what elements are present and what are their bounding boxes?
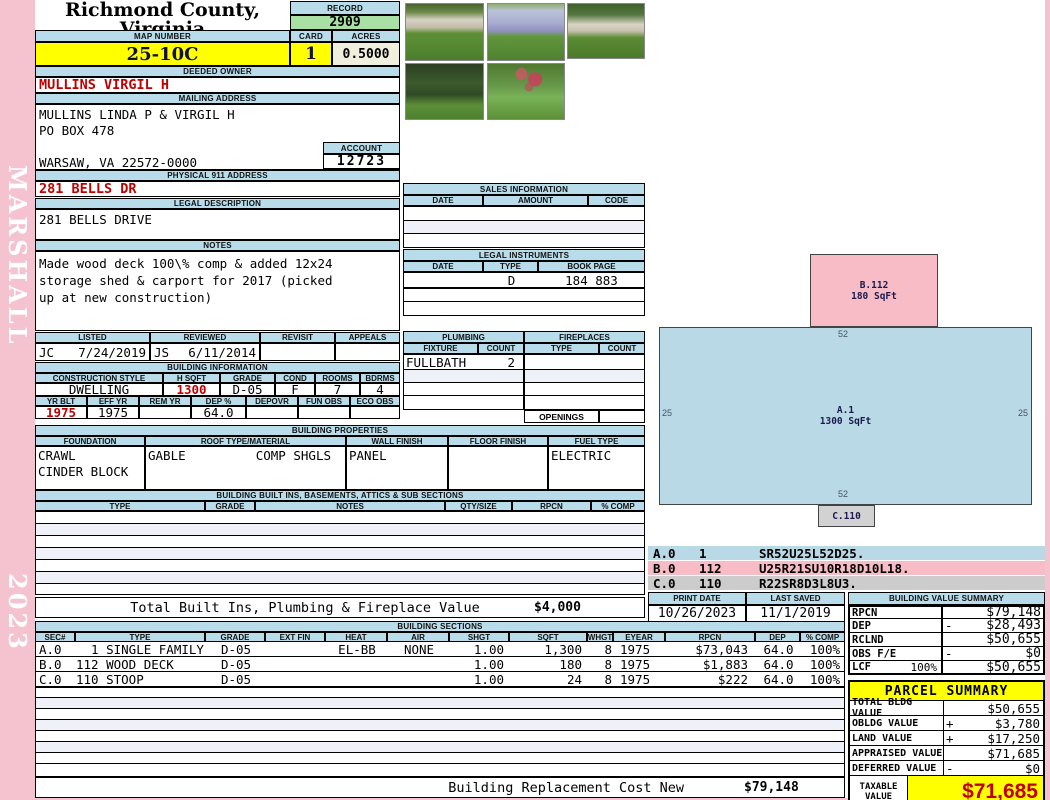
deeded-owner-value: MULLINS VIRGIL H: [35, 77, 400, 93]
replacement-cost-row: Building Replacement Cost New $79,148: [35, 777, 845, 798]
sections-col-eyear: EYEAR: [613, 632, 665, 642]
card-label: CARD: [290, 30, 332, 42]
legend-code: 110: [699, 576, 759, 591]
taxable-label: TAXABLE VALUE: [850, 776, 908, 800]
instrument-type: D: [484, 273, 539, 287]
instruments-empty-rows: [403, 288, 645, 316]
fuel-type-value: ELECTRIC: [548, 446, 645, 490]
appeals-label: APPEALS: [335, 332, 400, 343]
instrument-date: [404, 273, 484, 287]
fireplace-rows: [524, 354, 645, 410]
sections-col-comp: % COMP: [800, 632, 845, 642]
listed-label: LISTED: [35, 332, 150, 343]
map-number-value: 25-10C: [35, 42, 290, 66]
openings-value: [599, 410, 645, 423]
property-photo-front[interactable]: [405, 3, 484, 61]
record-value: 2909: [290, 15, 400, 30]
physical-address-label: PHYSICAL 911 ADDRESS: [35, 170, 400, 181]
sketch-dim-right: 25: [1018, 408, 1028, 418]
funobs-value: [298, 406, 350, 419]
plumbing-fireplaces-header-row: FIXTURE COUNT TYPE COUNT: [403, 343, 645, 354]
sketch-b-id: B.112: [860, 280, 889, 291]
sections-col-rpcn: RPCN: [665, 632, 755, 642]
legend-sec: C.0: [648, 576, 699, 591]
foundation-line: CRAWL: [38, 448, 76, 464]
vs-label: OBS F/E: [848, 647, 943, 661]
dates-header-row: PRINT DATE LAST SAVED: [648, 592, 845, 605]
builtins-notes-label: NOTES: [255, 501, 445, 511]
last-saved-value: 11/1/2019: [746, 605, 845, 622]
sales-empty-rows: [403, 206, 645, 248]
fixture-count-label: COUNT: [478, 343, 524, 354]
builtins-comp-label: % COMP: [591, 501, 645, 511]
floor-finish-value: [448, 446, 548, 490]
parcel-label: LAND VALUE: [850, 731, 944, 745]
effyr-value: 1975: [87, 406, 139, 419]
fixture-count-value: 2: [480, 355, 523, 370]
legend-code: 112: [699, 561, 759, 576]
instruments-title: LEGAL INSTRUMENTS: [403, 249, 645, 261]
sections-col-dep: DEP: [755, 632, 800, 642]
replacement-cost-value: $79,148: [744, 780, 844, 795]
parcel-label: OBLDG VALUE: [850, 716, 944, 730]
funobs-label: FUN OBS: [298, 396, 350, 406]
builtins-title: BUILDING BUILT INS, BASEMENTS, ATTICS & …: [35, 490, 645, 501]
notes-line: Made wood deck 100\% comp & added 12x24: [39, 255, 399, 272]
parcel-sign: -: [944, 761, 958, 775]
print-date-value: 10/26/2023: [648, 605, 746, 622]
instruments-type-label: TYPE: [483, 261, 538, 272]
account-value: 12723: [323, 154, 400, 169]
hsqft-value: 1300: [163, 383, 220, 396]
parcel-value: $17,250: [958, 731, 1043, 745]
builtins-qty-label: QTY/SIZE: [445, 501, 512, 511]
legend-code: 1: [699, 546, 759, 561]
vs-sign: -: [945, 618, 953, 633]
district-vertical-label: MARSHALL: [4, 165, 32, 330]
building-properties-header-row: FOUNDATION ROOF TYPE/MATERIAL WALL FINIS…: [35, 436, 645, 446]
depovr-label: DEPOVR: [246, 396, 298, 406]
fireplaces-title: FIREPLACES: [524, 331, 645, 343]
dep-value: 64.0: [191, 406, 246, 419]
last-saved-label: LAST SAVED: [746, 592, 845, 605]
fixture-value: FULLBATH: [404, 355, 480, 370]
revisit-label: REVISIT: [260, 332, 335, 343]
instruments-data-row: D 184 883: [403, 272, 645, 288]
plumbing-fireplaces-body: FULLBATH 2: [403, 354, 645, 410]
property-photo-shed[interactable]: [405, 63, 484, 120]
parcel-sign: +: [944, 716, 958, 730]
sketch-dim-bottom: 52: [838, 489, 848, 499]
review-header-row: LISTED REVIEWED REVISIT APPEALS: [35, 332, 400, 343]
vs-label: LCF: [852, 661, 871, 673]
building-properties-value-row: CRAWL CINDER BLOCK GABLE COMP SHGLS PANE…: [35, 446, 645, 490]
wall-finish-value: PANEL: [346, 446, 448, 490]
year-vertical-label: 2023: [4, 572, 32, 652]
fireplace-count-label: COUNT: [599, 343, 645, 354]
fixture-label: FIXTURE: [403, 343, 478, 354]
property-record-card: MARSHALL 2023 Richmond County, Virginia …: [0, 0, 1050, 800]
bdrms-value: 4: [360, 383, 400, 396]
section-row: A.0 1 SINGLE FAMILY D-05 EL-BB NONE 1.00…: [36, 642, 844, 657]
sketch-section-a: A.1 1300 SqFt: [659, 327, 1032, 505]
notes-block: Made wood deck 100\% comp & added 12x24 …: [35, 251, 400, 331]
legend-sec: A.0: [648, 546, 699, 561]
cond-value: F: [275, 383, 315, 396]
openings-row: OPENINGS: [524, 410, 645, 423]
sketch-section-c: C.110: [818, 505, 875, 527]
parcel-sign: [944, 701, 958, 715]
reviewed-by: JS: [154, 345, 169, 360]
plumbing-fireplaces-titles: PLUMBING FIREPLACES: [403, 331, 645, 343]
listed-date: 7/24/2019: [78, 345, 146, 360]
rooms-value: 7: [315, 383, 360, 396]
sales-header-row: DATE AMOUNT CODE: [403, 195, 645, 206]
builtins-grade-label: GRADE: [205, 501, 255, 511]
legal-description-label: LEGAL DESCRIPTION: [35, 198, 400, 209]
physical-address-value: 281 BELLS DR: [35, 181, 400, 197]
remyr-value: [139, 406, 191, 419]
vs-value: $50,655: [945, 660, 1041, 675]
parcel-sign: +: [944, 731, 958, 745]
appeals-value: [335, 343, 400, 361]
fireplace-type-label: TYPE: [524, 343, 599, 354]
sales-title: SALES INFORMATION: [403, 183, 645, 195]
sketch-section-b: B.112 180 SqFt: [810, 254, 938, 327]
builtins-header-row: TYPE GRADE NOTES QTY/SIZE RPCN % COMP: [35, 501, 645, 511]
property-photo-yard[interactable]: [487, 63, 565, 120]
parcel-value: $0: [958, 761, 1043, 775]
parcel-label: TOTAL BLDG VALUE: [850, 701, 944, 715]
foundation-value: CRAWL CINDER BLOCK: [35, 446, 145, 490]
deeded-owner-label: DEEDED OWNER: [35, 66, 400, 77]
roof-material-value: COMP SHGLS: [256, 448, 331, 463]
value-summary-table: RPCN $79,148 DEP - $28,493 RCLND $50,655…: [848, 605, 1045, 675]
floor-finish-label: FLOOR FINISH: [448, 436, 548, 446]
foundation-line: CINDER BLOCK: [38, 464, 128, 480]
account-label: ACCOUNT: [323, 142, 400, 154]
ecoobs-value: [350, 406, 400, 419]
vs-label: RCLND: [848, 633, 943, 647]
sections-col-whgt: WHGT: [587, 632, 613, 642]
taxable-row: TAXABLE VALUE $71,685: [850, 776, 1043, 800]
sections-header-row: SEC# TYPE GRADE EXT FIN HEAT AIR SHGT SQ…: [35, 632, 845, 642]
card-value: 1: [290, 42, 332, 66]
vs-label: RPCN: [848, 605, 943, 619]
parcel-summary: PARCEL SUMMARY TOTAL BLDG VALUE $50,655 …: [848, 680, 1045, 800]
print-date-label: PRINT DATE: [648, 592, 746, 605]
legend-trace: U25R21SU10R18D10L18.: [759, 561, 910, 576]
notes-label: NOTES: [35, 240, 400, 251]
depovr-value: [246, 406, 298, 419]
sections-rows: A.0 1 SINGLE FAMILY D-05 EL-BB NONE 1.00…: [35, 642, 845, 688]
revisit-value: [260, 343, 335, 361]
remyr-label: REM YR: [139, 396, 191, 406]
section-row: C.0 110 STOOP D-05 1.00 24 8 1975 $222 6…: [36, 672, 844, 687]
sections-col-shgt: SHGT: [449, 632, 509, 642]
construction-style-value: DWELLING: [35, 383, 163, 396]
parcel-label: APPRAISED VALUE: [850, 746, 944, 760]
sales-amount-label: AMOUNT: [483, 195, 588, 206]
roof-type-value: GABLE: [148, 448, 186, 463]
vs-label: DEP: [848, 619, 943, 633]
reviewed-label: REVIEWED: [150, 332, 260, 343]
sales-date-label: DATE: [403, 195, 483, 206]
plumbing-title: PLUMBING: [403, 331, 524, 343]
vs-value: $28,493: [953, 618, 1041, 633]
property-photo-wide[interactable]: [567, 3, 645, 59]
instruments-date-label: DATE: [403, 261, 483, 272]
fuel-type-label: FUEL TYPE: [548, 436, 645, 446]
roof-label: ROOF TYPE/MATERIAL: [145, 436, 346, 446]
instruments-header-row: DATE TYPE BOOK PAGE: [403, 261, 645, 272]
sketch-dim-left: 25: [662, 408, 672, 418]
parcel-label: DEFERRED VALUE: [850, 761, 944, 775]
taxable-value: $71,685: [908, 776, 1043, 800]
legend-trace: SR52U25L52D25.: [759, 546, 864, 561]
yrblt-value: 1975: [35, 406, 87, 419]
openings-label: OPENINGS: [524, 410, 599, 423]
notes-line: storage shed & carport for 2017 (picked: [39, 272, 399, 289]
sections-col-extfin: EXT FIN: [265, 632, 325, 642]
county-header: Richmond County, Virginia Commissioner o…: [35, 1, 290, 30]
replacement-cost-label: Building Replacement Cost New: [448, 780, 684, 796]
grade-value: D-05: [220, 383, 275, 396]
mailing-line: MULLINS LINDA P & VIRGIL H: [39, 107, 399, 123]
builtins-type-label: TYPE: [35, 501, 205, 511]
sections-col-air: AIR: [387, 632, 449, 642]
value-summary-title: BUILDING VALUE SUMMARY: [848, 592, 1045, 605]
review-value-row: JC7/24/2019 JS6/11/2014: [35, 343, 400, 361]
building-information-title: BUILDING INFORMATION: [35, 362, 400, 373]
reviewed-value: JS6/11/2014: [150, 343, 260, 361]
building-info-value-row2: 1975 1975 64.0: [35, 406, 400, 419]
sketch-legend-b: B.0 112 U25R21SU10R18D10L18.: [648, 561, 1045, 575]
sections-col-sec: SEC#: [35, 632, 75, 642]
sections-title: BUILDING SECTIONS: [35, 621, 845, 632]
instruments-bookpage-label: BOOK PAGE: [538, 261, 645, 272]
sections-col-heat: HEAT: [325, 632, 387, 642]
map-number-label: MAP NUMBER: [35, 30, 290, 42]
builtins-total-value: $4,000: [534, 600, 644, 615]
building-properties-title: BUILDING PROPERTIES: [35, 425, 645, 436]
sections-empty-rows: [35, 687, 845, 777]
sketch-legend-a: A.0 1 SR52U25L52D25.: [648, 546, 1045, 560]
acres-value: 0.5000: [332, 42, 400, 66]
wall-finish-label: WALL FINISH: [346, 436, 448, 446]
legend-sec: B.0: [648, 561, 699, 576]
builtins-total-label: Total Built Ins, Plumbing & Fireplace Va…: [36, 600, 534, 616]
sketch-c-id: C.110: [832, 511, 861, 522]
parcel-value: $50,655: [958, 701, 1043, 715]
vs-value: $50,655: [945, 632, 1041, 647]
plumbing-rows: FULLBATH 2: [403, 354, 524, 410]
builtins-empty-rows: [35, 511, 645, 595]
listed-by: JC: [39, 345, 54, 360]
builtins-rpcn-label: RPCN: [512, 501, 591, 511]
section-row: B.0 112 WOOD DECK D-05 1.00 180 8 1975 $…: [36, 657, 844, 672]
sketch-legend-c: C.0 110 R22SR8D3L8U3.: [648, 576, 1045, 590]
sketch-dim-top: 52: [838, 329, 848, 339]
sketch-b-sqft: 180 SqFt: [851, 291, 897, 302]
reviewed-date: 6/11/2014: [188, 345, 256, 360]
parcel-value: $3,780: [958, 716, 1043, 730]
parcel-value: $71,685: [958, 746, 1043, 760]
sales-code-label: CODE: [588, 195, 645, 206]
foundation-label: FOUNDATION: [35, 436, 145, 446]
building-info-value-row1: DWELLING 1300 D-05 F 7 4: [35, 383, 400, 396]
mailing-line: PO BOX 478: [39, 123, 399, 139]
instrument-bookpage: 184 883: [539, 273, 644, 287]
parcel-sign: [944, 746, 958, 760]
notes-line: up at new construction): [39, 289, 399, 306]
property-photo-house[interactable]: [487, 3, 565, 61]
sections-col-type: TYPE: [75, 632, 205, 642]
legal-description-value: 281 BELLS DRIVE: [35, 209, 400, 240]
sections-col-grade: GRADE: [205, 632, 265, 642]
dates-value-row: 10/26/2023 11/1/2019: [648, 605, 845, 622]
mailing-address-label: MAILING ADDRESS: [35, 93, 400, 104]
acres-label: ACRES: [332, 30, 400, 42]
ecoobs-label: ECO OBS: [350, 396, 400, 406]
roof-value: GABLE COMP SHGLS: [145, 446, 346, 490]
sketch-a-id: A.1: [837, 405, 854, 416]
vs-extra: 100%: [911, 661, 938, 674]
listed-value: JC7/24/2019: [35, 343, 150, 361]
record-label: RECORD: [290, 1, 400, 15]
sketch-a-sqft: 1300 SqFt: [820, 416, 871, 427]
vs-label-lcf: LCF 100%: [848, 661, 943, 675]
builtins-total-row: Total Built Ins, Plumbing & Fireplace Va…: [35, 597, 645, 618]
sections-col-sqft: SQFT: [509, 632, 587, 642]
legend-trace: R22SR8D3L8U3.: [759, 576, 857, 591]
